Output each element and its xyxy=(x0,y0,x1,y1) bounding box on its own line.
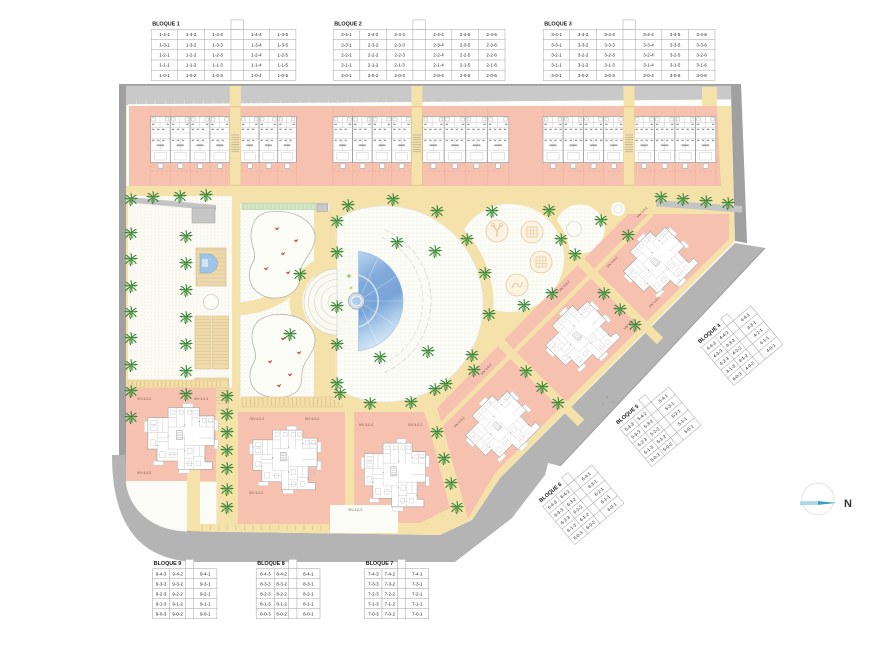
svg-text:8-0-2: 8-0-2 xyxy=(276,611,287,616)
svg-text:9-0-3: 9-0-3 xyxy=(156,611,167,616)
svg-text:3-2-6: 3-2-6 xyxy=(696,53,707,58)
svg-text:9-3-3: 9-3-3 xyxy=(156,581,167,586)
svg-text:3-0-5: 3-0-5 xyxy=(670,73,681,78)
svg-text:1-4-2: 1-4-2 xyxy=(186,32,197,37)
svg-text:2-3-6: 2-3-6 xyxy=(486,42,497,47)
svg-text:2-1-3: 2-1-3 xyxy=(394,63,405,68)
svg-text:8-0-3: 8-0-3 xyxy=(260,611,271,616)
svg-text:2-4-5: 2-4-5 xyxy=(460,32,471,37)
svg-text:3-1-2: 3-1-2 xyxy=(578,63,589,68)
svg-text:7-4-2: 7-4-2 xyxy=(384,571,395,576)
svg-text:VIV 4-0-2: VIV 4-0-2 xyxy=(137,397,151,401)
svg-text:3-2-2: 3-2-2 xyxy=(578,53,589,58)
svg-text:1-2-4: 1-2-4 xyxy=(251,53,262,58)
svg-text:7-2-1: 7-2-1 xyxy=(412,591,423,596)
svg-text:1-1-4: 1-1-4 xyxy=(251,63,262,68)
svg-text:2-4-3: 2-4-3 xyxy=(394,32,405,37)
svg-text:1-3-2: 1-3-2 xyxy=(186,42,197,47)
svg-text:3-4-1: 3-4-1 xyxy=(551,32,562,37)
svg-text:9-3-1: 9-3-1 xyxy=(200,581,211,586)
svg-text:BLOQUE 8: BLOQUE 8 xyxy=(257,561,285,567)
svg-text:3-1-1: 3-1-1 xyxy=(551,63,562,68)
svg-text:3-0-6: 3-0-6 xyxy=(696,73,707,78)
svg-text:9-2-3: 9-2-3 xyxy=(156,591,167,596)
svg-text:2-0-1: 2-0-1 xyxy=(341,73,352,78)
svg-text:7-4-1: 7-4-1 xyxy=(412,571,423,576)
svg-text:2-3-2: 2-3-2 xyxy=(368,42,379,47)
svg-text:2-0-6: 2-0-6 xyxy=(486,73,497,78)
svg-text:2-1-2: 2-1-2 xyxy=(368,63,379,68)
svg-text:3-3-4: 3-3-4 xyxy=(643,42,654,47)
svg-text:2-2-2: 2-2-2 xyxy=(368,53,379,58)
svg-text:8-3-3: 8-3-3 xyxy=(260,581,271,586)
svg-text:1-3-1: 1-3-1 xyxy=(159,42,170,47)
svg-text:7-0-3: 7-0-3 xyxy=(368,611,379,616)
svg-text:3-2-4: 3-2-4 xyxy=(643,53,654,58)
svg-text:BLOQUE 7: BLOQUE 7 xyxy=(366,561,394,567)
svg-text:3-4-4: 3-4-4 xyxy=(643,32,654,37)
svg-text:1-0-5: 1-0-5 xyxy=(278,73,289,78)
svg-text:9-0-1: 9-0-1 xyxy=(200,611,211,616)
svg-text:8-0-1: 8-0-1 xyxy=(303,611,314,616)
svg-text:7-0-2: 7-0-2 xyxy=(384,611,395,616)
svg-text:9-4-1: 9-4-1 xyxy=(200,571,211,576)
svg-text:3-3-2: 3-3-2 xyxy=(578,42,589,47)
svg-text:3-3-3: 3-3-3 xyxy=(604,42,615,47)
svg-text:1-2-3: 1-2-3 xyxy=(212,53,223,58)
svg-text:9-1-2: 9-1-2 xyxy=(172,601,183,606)
svg-text:9-2-2: 9-2-2 xyxy=(172,591,183,596)
svg-text:7-2-2: 7-2-2 xyxy=(384,591,395,596)
svg-text:7-0-1: 7-0-1 xyxy=(412,611,423,616)
svg-text:3-1-6: 3-1-6 xyxy=(696,63,707,68)
svg-text:VIV 4-0-2: VIV 4-0-2 xyxy=(359,423,373,427)
svg-text:1-4-5: 1-4-5 xyxy=(278,32,289,37)
svg-text:3-2-1: 3-2-1 xyxy=(551,53,562,58)
svg-text:7-4-3: 7-4-3 xyxy=(368,571,379,576)
svg-text:VIV 4-0-2: VIV 4-0-2 xyxy=(348,508,362,512)
svg-text:3-1-4: 3-1-4 xyxy=(643,63,654,68)
svg-text:2-2-5: 2-2-5 xyxy=(460,53,471,58)
svg-text:N: N xyxy=(844,498,852,510)
svg-text:9-2-1: 9-2-1 xyxy=(200,591,211,596)
svg-text:3-0-4: 3-0-4 xyxy=(643,73,654,78)
svg-text:3-1-3: 3-1-3 xyxy=(604,63,615,68)
svg-text:3-4-3: 3-4-3 xyxy=(604,32,615,37)
svg-text:2-3-4: 2-3-4 xyxy=(433,42,444,47)
svg-text:3-0-2: 3-0-2 xyxy=(578,73,589,78)
svg-text:BLOQUE 1: BLOQUE 1 xyxy=(152,21,180,27)
svg-text:7-2-3: 7-2-3 xyxy=(368,591,379,596)
svg-text:1-1-2: 1-1-2 xyxy=(186,63,197,68)
svg-text:VIV 4-0-2: VIV 4-0-2 xyxy=(194,397,208,401)
svg-text:3-4-5: 3-4-5 xyxy=(670,32,681,37)
svg-text:2-1-5: 2-1-5 xyxy=(460,63,471,68)
svg-text:3-0-3: 3-0-3 xyxy=(604,73,615,78)
svg-text:1-2-1: 1-2-1 xyxy=(159,53,170,58)
svg-text:1-4-1: 1-4-1 xyxy=(159,32,170,37)
svg-text:VIV 4-0-2: VIV 4-0-2 xyxy=(305,417,319,421)
svg-text:2-2-6: 2-2-6 xyxy=(486,53,497,58)
svg-text:8-3-1: 8-3-1 xyxy=(303,581,314,586)
svg-text:9-0-2: 9-0-2 xyxy=(172,611,183,616)
svg-text:1-2-5: 1-2-5 xyxy=(278,53,289,58)
svg-text:2-2-3: 2-2-3 xyxy=(394,53,405,58)
svg-text:3-3-1: 3-3-1 xyxy=(551,42,562,47)
svg-text:8-3-2: 8-3-2 xyxy=(276,581,287,586)
svg-text:3-2-5: 3-2-5 xyxy=(670,53,681,58)
svg-text:BLOQUE 2: BLOQUE 2 xyxy=(334,21,362,27)
svg-text:9-3-2: 9-3-2 xyxy=(172,581,183,586)
svg-text:3-3-6: 3-3-6 xyxy=(696,42,707,47)
svg-text:8-1-1: 8-1-1 xyxy=(303,601,314,606)
svg-text:3-4-6: 3-4-6 xyxy=(696,32,707,37)
svg-text:2-3-5: 2-3-5 xyxy=(460,42,471,47)
svg-text:7-1-1: 7-1-1 xyxy=(412,601,423,606)
svg-text:VIV 4-0-2: VIV 4-0-2 xyxy=(249,491,263,495)
svg-text:2-4-1: 2-4-1 xyxy=(341,32,352,37)
svg-text:8-4-2: 8-4-2 xyxy=(276,571,287,576)
svg-text:2-1-1: 2-1-1 xyxy=(341,63,352,68)
svg-text:8-1-3: 8-1-3 xyxy=(260,601,271,606)
svg-text:7-3-2: 7-3-2 xyxy=(384,581,395,586)
svg-text:7-1-3: 7-1-3 xyxy=(368,601,379,606)
svg-text:3-4-2: 3-4-2 xyxy=(578,32,589,37)
svg-text:8-2-2: 8-2-2 xyxy=(276,591,287,596)
svg-text:1-2-2: 1-2-2 xyxy=(186,53,197,58)
svg-text:9-1-3: 9-1-3 xyxy=(156,601,167,606)
svg-text:8-4-1: 8-4-1 xyxy=(303,571,314,576)
svg-text:1-1-5: 1-1-5 xyxy=(278,63,289,68)
svg-text:8-2-3: 8-2-3 xyxy=(260,591,271,596)
svg-text:8-4-3: 8-4-3 xyxy=(260,571,271,576)
svg-text:2-4-2: 2-4-2 xyxy=(368,32,379,37)
svg-text:8-1-2: 8-1-2 xyxy=(276,601,287,606)
svg-text:1-4-4: 1-4-4 xyxy=(251,32,262,37)
svg-text:2-0-2: 2-0-2 xyxy=(368,73,379,78)
svg-text:BLOQUE 9: BLOQUE 9 xyxy=(154,561,182,567)
svg-text:9-4-3: 9-4-3 xyxy=(156,571,167,576)
svg-text:2-2-4: 2-2-4 xyxy=(433,53,444,58)
svg-text:2-4-6: 2-4-6 xyxy=(486,32,497,37)
svg-text:3-0-1: 3-0-1 xyxy=(551,73,562,78)
svg-text:BLOQUE 3: BLOQUE 3 xyxy=(544,21,572,27)
svg-text:VIV 4-0-2: VIV 4-0-2 xyxy=(137,471,151,475)
svg-text:9-1-1: 9-1-1 xyxy=(200,601,211,606)
svg-text:3-1-5: 3-1-5 xyxy=(670,63,681,68)
svg-text:2-4-4: 2-4-4 xyxy=(433,32,444,37)
svg-text:1-0-1: 1-0-1 xyxy=(159,73,170,78)
svg-text:VIV 4-0-2: VIV 4-0-2 xyxy=(408,423,422,427)
svg-text:3-3-5: 3-3-5 xyxy=(670,42,681,47)
svg-text:1-4-3: 1-4-3 xyxy=(212,32,223,37)
svg-text:2-3-3: 2-3-3 xyxy=(394,42,405,47)
svg-text:1-0-3: 1-0-3 xyxy=(212,73,223,78)
svg-text:2-1-6: 2-1-6 xyxy=(486,63,497,68)
svg-text:1-1-1: 1-1-1 xyxy=(159,63,170,68)
svg-text:2-3-1: 2-3-1 xyxy=(341,42,352,47)
svg-text:7-3-1: 7-3-1 xyxy=(412,581,423,586)
svg-text:2-1-4: 2-1-4 xyxy=(433,63,444,68)
svg-text:VIV 4-0-2: VIV 4-0-2 xyxy=(250,417,264,421)
svg-text:1-3-4: 1-3-4 xyxy=(251,42,262,47)
svg-text:7-3-3: 7-3-3 xyxy=(368,581,379,586)
svg-text:8-2-1: 8-2-1 xyxy=(303,591,314,596)
svg-text:7-1-2: 7-1-2 xyxy=(384,601,395,606)
svg-text:1-0-2: 1-0-2 xyxy=(186,73,197,78)
svg-text:2-0-5: 2-0-5 xyxy=(460,73,471,78)
svg-text:2-0-4: 2-0-4 xyxy=(433,73,444,78)
svg-text:2-0-3: 2-0-3 xyxy=(394,73,405,78)
svg-text:1-3-5: 1-3-5 xyxy=(278,42,289,47)
svg-text:1-0-4: 1-0-4 xyxy=(251,73,262,78)
svg-text:3-2-3: 3-2-3 xyxy=(604,53,615,58)
svg-text:2-2-1: 2-2-1 xyxy=(341,53,352,58)
svg-text:9-4-2: 9-4-2 xyxy=(172,571,183,576)
svg-text:1-3-3: 1-3-3 xyxy=(212,42,223,47)
svg-text:1-1-3: 1-1-3 xyxy=(212,63,223,68)
